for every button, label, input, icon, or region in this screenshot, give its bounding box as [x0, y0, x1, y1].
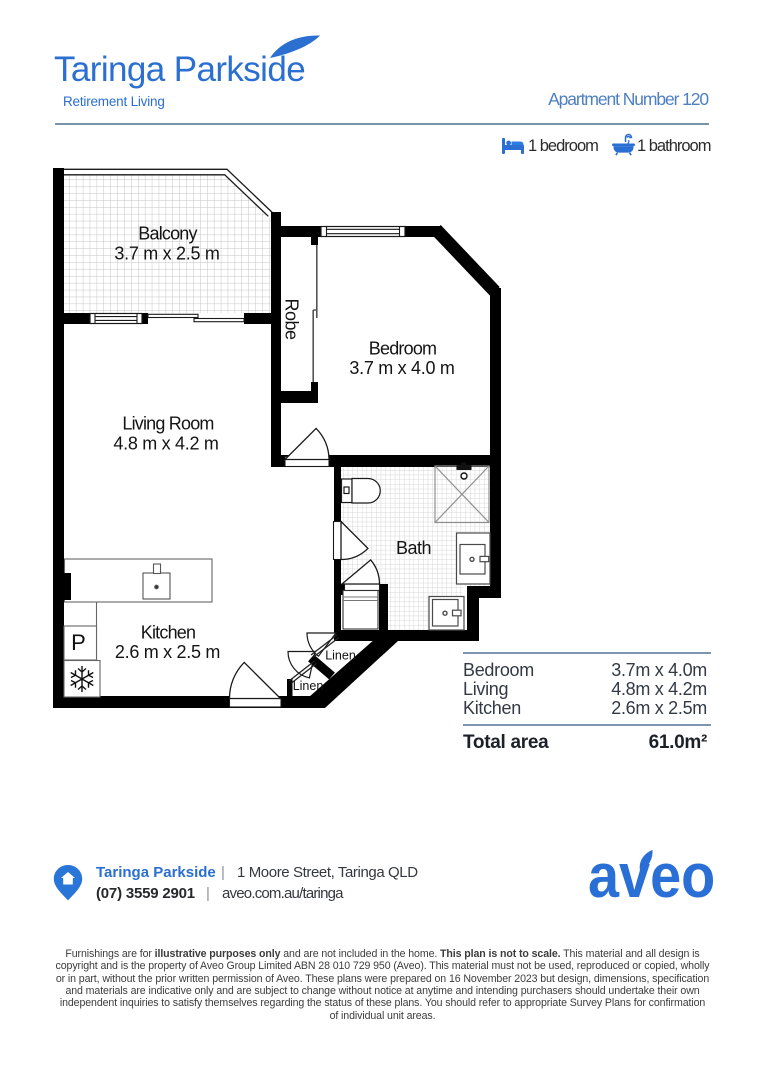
svg-text:Linen: Linen [325, 649, 356, 663]
svg-text:P: P [71, 630, 86, 655]
svg-text:4.8 m x 4.2 m: 4.8 m x 4.2 m [113, 434, 218, 454]
svg-text:Bath: Bath [396, 538, 431, 558]
svg-text:2.6 m x 2.5 m: 2.6 m x 2.5 m [115, 642, 220, 662]
svg-text:3.7 m x 4.0 m: 3.7 m x 4.0 m [349, 358, 454, 378]
svg-text:Robe: Robe [282, 298, 302, 340]
svg-text:Linen: Linen [293, 679, 324, 693]
svg-text:Bedroom: Bedroom [369, 339, 436, 359]
svg-text:Living Room: Living Room [122, 414, 213, 434]
svg-text:Balcony: Balcony [138, 224, 197, 244]
svg-text:3.7 m x 2.5 m: 3.7 m x 2.5 m [114, 244, 219, 264]
svg-text:Kitchen: Kitchen [141, 623, 195, 643]
